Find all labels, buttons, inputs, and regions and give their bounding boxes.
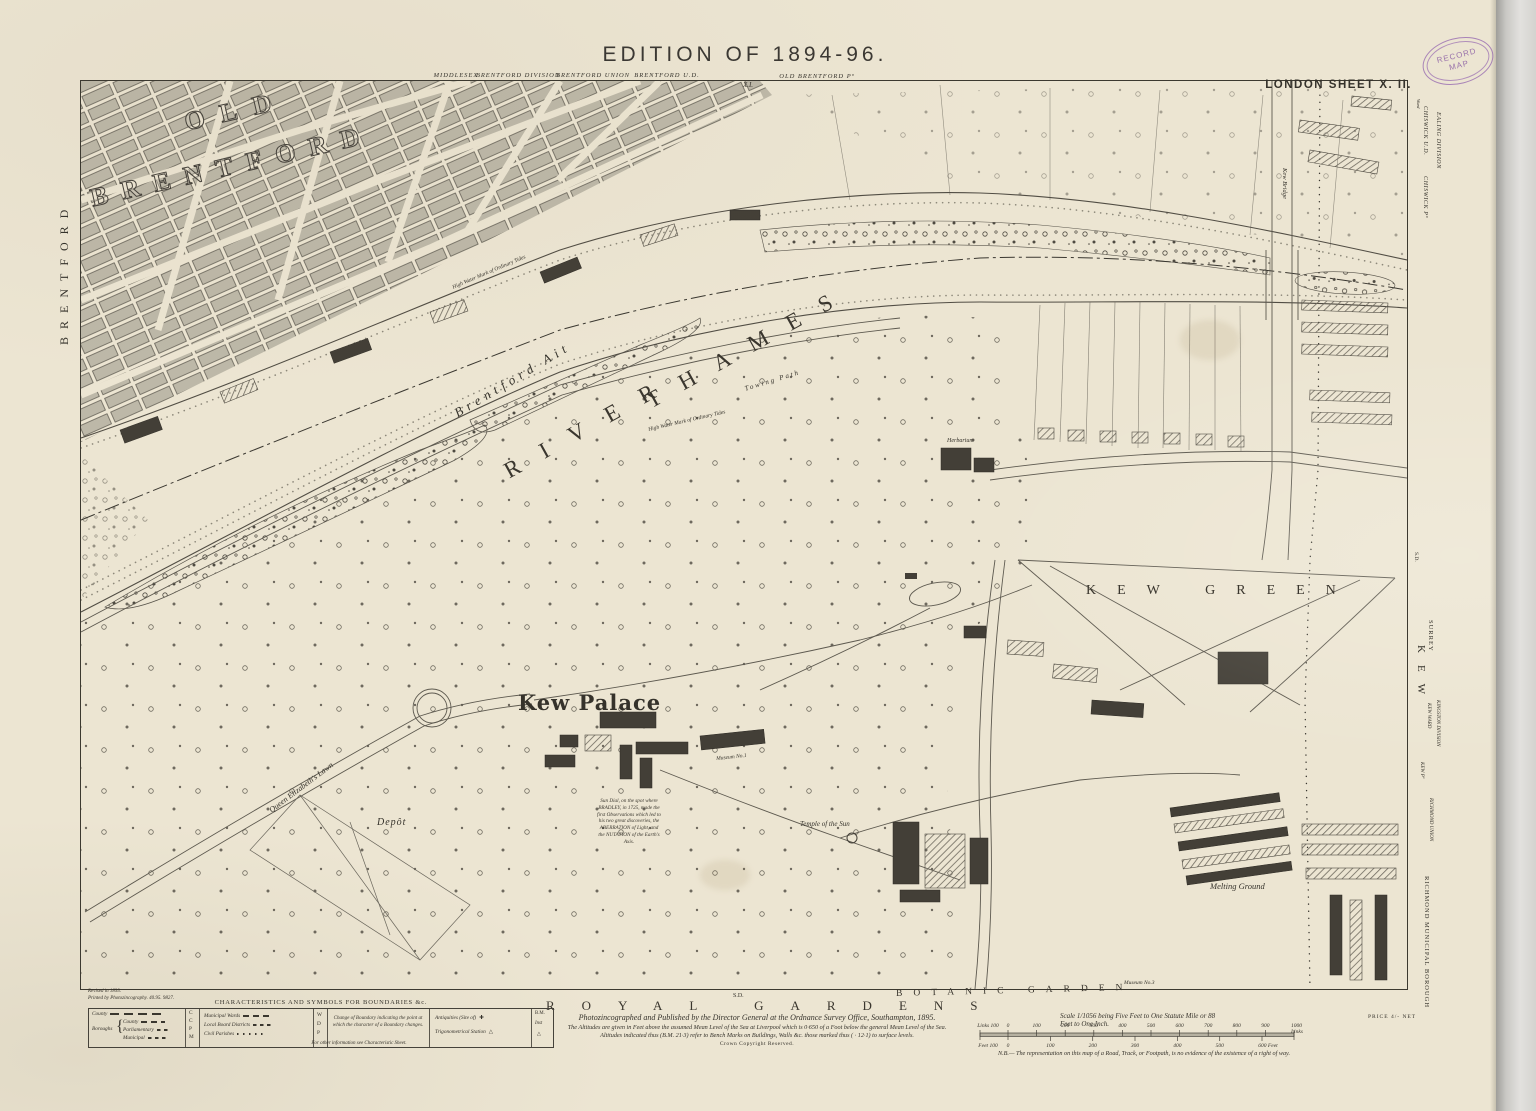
- legend-borough-row: County: [123, 1019, 138, 1025]
- sheet-number-label: LONDON SHEET X. II.: [1265, 80, 1412, 92]
- map-label-temple-of-the-sun: Temple of the Sun: [800, 821, 850, 828]
- right-margin-ward: Ward: [1416, 99, 1421, 108]
- antiquities-symbol: ✚: [479, 1015, 483, 1021]
- map-label-herbarium: Herbarium: [947, 438, 974, 444]
- right-margin-kew: KEW: [1415, 645, 1426, 706]
- legend-trig-station: Trigonometrical Station: [435, 1029, 486, 1035]
- scale-feet-label: 0: [1007, 1043, 1010, 1049]
- map-label-sd: S.D.: [733, 993, 744, 999]
- scale-feet-label: 500: [1216, 1043, 1224, 1049]
- top-margin-union: BRENTFORD UNION: [556, 73, 630, 80]
- legend-divider: [199, 1009, 200, 1047]
- legend-ward-row: Civil Parishes: [204, 1031, 234, 1037]
- legend-divider: [531, 1009, 532, 1047]
- adjoining-sheet-ref: X.I.: [743, 82, 753, 89]
- stamp-line-1: RECORD: [1436, 47, 1478, 66]
- scale-links-label: Links 100: [977, 1023, 999, 1029]
- legend-borough-row: Parliamentary: [123, 1027, 154, 1033]
- civil-parishes-sample: [237, 1033, 267, 1035]
- map-label-depot: Depôt: [377, 818, 406, 828]
- scale-links-label: 200: [1061, 1023, 1069, 1029]
- left-margin-town: BRENTFORD: [58, 202, 70, 345]
- legend-right-col: B.M.: [535, 1012, 545, 1017]
- scale-feet-label: Feet 100: [978, 1043, 997, 1049]
- legend-divider: [185, 1009, 186, 1047]
- scale-links-label: 400: [1118, 1023, 1126, 1029]
- top-margin-county: MIDDLESEX: [434, 73, 479, 80]
- scale-links-label: 900: [1261, 1023, 1269, 1029]
- map-label-kew-bridge: Kew Bridge: [1281, 168, 1288, 199]
- legend-borough-row: Municipal: [123, 1035, 145, 1041]
- right-margin-borough: RICHMOND MUNICIPAL BOROUGH: [1423, 876, 1430, 1008]
- scale-links-label: 700: [1204, 1023, 1212, 1029]
- sheet-edge-shadow: [1490, 0, 1496, 1111]
- right-margin-division: EALING DIVISION: [1435, 112, 1441, 169]
- legend-right-col: △: [537, 1033, 541, 1038]
- map-label-kew-green: KEW GREEN: [1086, 584, 1357, 598]
- right-margin-county: SURREY: [1427, 620, 1434, 652]
- top-margin-district: BRENTFORD U.D.: [634, 73, 699, 80]
- imprint-printed: Printed by Photozincography. 40.95. 9827…: [88, 996, 174, 1001]
- legend-letter: C: [189, 1019, 193, 1024]
- scale-bar-block: Scale 1/1056 being Five Feet to One Stat…: [976, 1012, 1312, 1064]
- parliamentary-sample: [157, 1029, 171, 1030]
- stamp-line-2: MAP: [1448, 59, 1470, 73]
- map-label-museum-no3: Museum No.3: [1124, 981, 1155, 987]
- right-margin-union: RICHMOND UNION: [1428, 798, 1433, 841]
- right-margin-kew-parish: KEW Pº: [1419, 762, 1424, 778]
- map-label-royal-gardens: ROYAL GARDENS: [546, 999, 1005, 1012]
- scale-bar: [976, 1030, 1312, 1042]
- local-board-sample: [253, 1024, 271, 1025]
- right-margin-sd: S.D.: [1413, 552, 1419, 562]
- scale-links-label: 300: [1090, 1023, 1098, 1029]
- municipal-wards-sample: [243, 1015, 269, 1016]
- legend-ward-letter: P: [317, 1031, 320, 1036]
- legend-letter: P: [189, 1027, 192, 1032]
- scale-links-label: 800: [1233, 1023, 1241, 1029]
- imprint-line3: Altitudes indicated thus (B.M. 21·3) ref…: [600, 1033, 914, 1039]
- scale-links-label: 0: [1007, 1023, 1010, 1029]
- scale-feet-label: 600 Feet: [1258, 1043, 1277, 1049]
- scale-caption: Scale 1/1056 being Five Feet to One Stat…: [1060, 1012, 1228, 1028]
- right-margin-kew-ward: KEW WARD: [1426, 703, 1431, 728]
- legend-footer: For other information see Characteristic…: [311, 1041, 406, 1046]
- trig-station-symbol: △: [489, 1029, 493, 1035]
- scale-feet-label: 400: [1173, 1043, 1181, 1049]
- legend-right-col: Inst: [535, 1022, 542, 1027]
- scale-links-label: 600: [1175, 1023, 1183, 1029]
- legend-letter: M: [189, 1035, 194, 1040]
- map-sheet: EDITION OF 1894-96. MIDDLESEX BRENTFORD …: [0, 0, 1536, 1111]
- scale-feet-label: 200: [1089, 1043, 1097, 1049]
- legend-county-label: County: [92, 1011, 107, 1017]
- top-margin-parish: OLD BRENTFORD Pº: [779, 74, 854, 81]
- imprint-line2: The Altitudes are given in Feet above th…: [568, 1025, 947, 1031]
- legend-ward-letter: D: [317, 1022, 321, 1027]
- legend-ward-row: Local Board Districts: [204, 1022, 250, 1028]
- right-margin-kingston-division: KINGSTON DIVISION: [1435, 700, 1440, 746]
- right-margin-district: CHISWICK U.D.: [1422, 106, 1428, 155]
- map-label-kew-palace: Kew Palace: [518, 692, 661, 713]
- imprint-line1: Photozincographed and Published by the D…: [579, 1014, 936, 1022]
- municipal-sample: [148, 1037, 166, 1038]
- legend-boroughs-label: Boroughs: [92, 1027, 112, 1032]
- legend-antiquities: Antiquities (Site of): [435, 1015, 476, 1021]
- imprint-copyright: Crown Copyright Reserved.: [720, 1042, 794, 1048]
- edition-title: EDITION OF 1894-96.: [603, 44, 888, 65]
- top-margin-division: BRENTFORD DIVISION: [476, 73, 560, 80]
- legend-change-note: Change of Boundary indicating the point …: [332, 1015, 424, 1028]
- legend-divider: [429, 1009, 430, 1047]
- legend-title: CHARACTERISTICS AND SYMBOLS FOR BOUNDARI…: [215, 1000, 428, 1007]
- scale-nb-note: N.B.— The representation on this map of …: [998, 1050, 1290, 1057]
- imprint-revised: Revised in 1893.: [88, 989, 121, 994]
- scale-feet-label: 100: [1046, 1043, 1054, 1049]
- price-label: PRICE 4/- NET: [1368, 1015, 1416, 1021]
- legend-letter: C: [189, 1011, 193, 1016]
- scale-links-label: 100: [1032, 1023, 1040, 1029]
- sun-dial-note: Sun Dial, on the spot where BRADLEY, in …: [596, 798, 662, 845]
- county-boundary-sample: [110, 1013, 162, 1014]
- borough-county-sample: [141, 1021, 165, 1022]
- legend-box: County Boroughs { County Parliamentary M…: [88, 1008, 554, 1048]
- map-neatline: [80, 80, 1408, 990]
- legend-ward-letter: W: [317, 1013, 322, 1018]
- scale-feet-label: 300: [1131, 1043, 1139, 1049]
- scan-background-edge: [1496, 0, 1536, 1111]
- right-margin-parish: CHISWICK Pº: [1422, 176, 1428, 218]
- scale-links-label: 500: [1147, 1023, 1155, 1029]
- legend-ward-row: Municipal Wards: [204, 1013, 240, 1019]
- map-label-melting-ground: Melting Ground: [1210, 882, 1265, 891]
